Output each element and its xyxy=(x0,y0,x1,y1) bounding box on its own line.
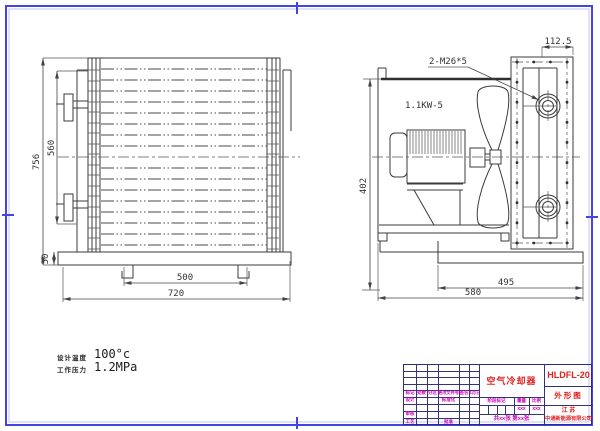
design-temp-value: 100°c xyxy=(94,347,130,361)
motor-fins xyxy=(410,131,461,154)
mounting-bracket-bottom xyxy=(56,194,88,221)
working-pressure-value: 1.2MPa xyxy=(94,360,137,374)
role-process: 工艺 xyxy=(404,418,416,426)
role-standardize: 标准化 xyxy=(438,397,459,404)
drawing-type: 外形图 xyxy=(544,386,593,405)
drawing-sheet: 756 560 50 500 720 xyxy=(0,0,600,431)
weight-value: xxx xyxy=(514,405,529,414)
weight-label: 重量 xyxy=(514,397,529,405)
dim-495: 495 xyxy=(498,278,514,288)
rev-col-sign: 签名 xyxy=(459,390,469,397)
company-name: 中通新能源有限公司 xyxy=(545,416,592,423)
company-region: 江 苏 xyxy=(562,408,576,416)
dim-112-5: 112.5 xyxy=(544,37,571,47)
connection-label: 2-M26*5 xyxy=(429,57,467,67)
motor-power-label: 1.1KW-5 xyxy=(405,101,443,111)
header-panel xyxy=(511,57,573,249)
dim-500: 500 xyxy=(177,273,193,283)
base-frame xyxy=(58,252,291,278)
dim-580: 580 xyxy=(465,288,481,298)
stage-mark-label: 阶段标记 xyxy=(479,397,514,405)
design-temp-label: 设计温度 xyxy=(57,352,87,362)
mounting-bracket-top xyxy=(56,94,88,121)
working-pressure-label: 工作压力 xyxy=(57,364,87,374)
fan-housing xyxy=(378,68,583,263)
dim-720: 720 xyxy=(168,289,184,299)
rev-col-zone: 分区 xyxy=(427,390,438,397)
company-block: 江 苏 中通新能源有限公司 xyxy=(544,405,593,426)
dim-756: 756 xyxy=(32,154,42,170)
rev-col-count: 处数 xyxy=(416,390,427,397)
pipe-fitting-bottom xyxy=(523,191,560,223)
dim-50: 50 xyxy=(41,254,51,265)
side-view-labels: 1.1KW-5 2-M26*5 xyxy=(405,57,539,111)
side-view-dimensions: 402 112.5 495 580 xyxy=(359,37,583,301)
model-number: HLDFL-20 xyxy=(544,365,593,386)
role-design: 设计 xyxy=(404,397,416,404)
rev-col-mark: 标记 xyxy=(404,390,416,397)
dim-560: 560 xyxy=(47,140,57,156)
title-block: 标记 处数 分区 更改文件号 签名 年月日 设计 标准化 审核 工艺 批准 空气… xyxy=(403,364,592,425)
scale-value: xxx xyxy=(529,405,544,414)
motor xyxy=(390,130,490,225)
front-view: 756 560 50 500 720 xyxy=(32,58,300,302)
rev-col-date: 年月日 xyxy=(469,390,479,397)
sheet-info: 共xx张 第xx张 xyxy=(479,414,544,426)
scale-label: 比例 xyxy=(529,397,544,405)
product-name: 空气冷却器 xyxy=(479,365,544,397)
role-review: 审核 xyxy=(404,411,416,418)
side-view: 1.1KW-5 2-M26*5 402 112.5 495 580 xyxy=(359,37,583,301)
rev-col-doc-no: 更改文件号 xyxy=(438,390,459,397)
pedestal xyxy=(438,252,583,263)
dim-402: 402 xyxy=(359,178,369,194)
role-approve: 批准 xyxy=(438,418,459,426)
